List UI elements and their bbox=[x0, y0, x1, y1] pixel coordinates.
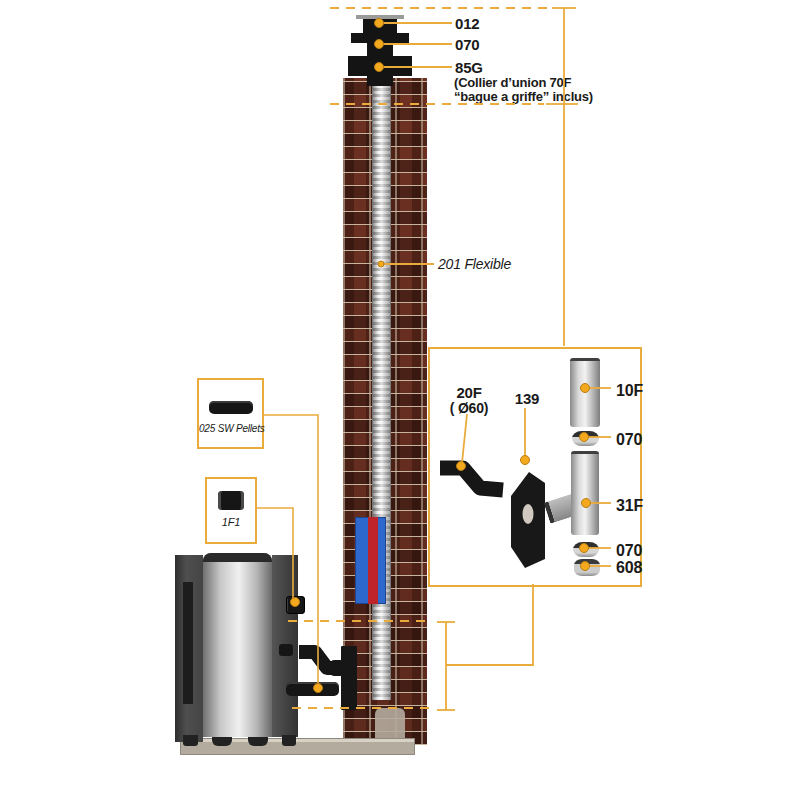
callout-label-012: 012 bbox=[455, 15, 479, 32]
label-070-bottom: 070 bbox=[616, 542, 642, 560]
stove-foot bbox=[183, 735, 198, 746]
stove-body bbox=[203, 553, 272, 737]
stove-foot bbox=[248, 737, 268, 746]
collar-070-bottom-part bbox=[573, 542, 599, 557]
label-070-top: 070 bbox=[616, 431, 642, 449]
fitting-part-label: 1F1 bbox=[207, 516, 255, 528]
detail-box: 20F ( Ø60) 139 10F 070 31F 070 608 bbox=[428, 347, 642, 587]
label-20f: 20F bbox=[447, 384, 491, 401]
fitting-part bbox=[218, 491, 244, 510]
callout-label-070-top: 070 bbox=[455, 36, 479, 53]
label-608: 608 bbox=[616, 559, 642, 577]
wall-plate-stub bbox=[331, 660, 343, 676]
pipe-10f-part bbox=[570, 358, 600, 427]
flex-liner bbox=[372, 84, 391, 700]
label-20f-dia: ( Ø60) bbox=[447, 400, 491, 416]
callout-label-85g: 85G bbox=[455, 59, 483, 76]
label-139: 139 bbox=[507, 390, 547, 407]
callout-note-line1: (Collier d’union 70F bbox=[454, 75, 571, 90]
stove-foot bbox=[282, 735, 296, 746]
stove-foot bbox=[212, 737, 232, 746]
wall-plate-installed bbox=[341, 646, 357, 710]
wall-base-recess bbox=[375, 708, 405, 740]
stove-window-slot bbox=[183, 582, 193, 704]
cap-pipe-lower bbox=[367, 76, 393, 86]
label-31f: 31F bbox=[616, 497, 643, 515]
pellets-part-box: 025 SW Pellets bbox=[197, 378, 264, 449]
cap-608-part bbox=[574, 559, 600, 576]
tee-31f-part bbox=[571, 451, 599, 535]
collar-070-top-part bbox=[572, 431, 599, 446]
cap-storm-collar bbox=[348, 56, 412, 76]
cap-pipe-upper bbox=[367, 43, 393, 56]
fitting-1f1-installed bbox=[286, 596, 305, 614]
cap-clamp bbox=[351, 33, 409, 43]
pellet-pipe-part bbox=[209, 401, 253, 414]
stove-top-band bbox=[203, 553, 272, 562]
pellet-pipe-installed bbox=[286, 682, 339, 696]
insulation-core bbox=[368, 517, 378, 604]
plate-139-hole bbox=[523, 504, 534, 524]
callout-label-201-flexible: 201 Flexible bbox=[438, 256, 511, 272]
plate-139-part bbox=[511, 472, 545, 568]
callout-note-line2: “bague a griffe” inclus) bbox=[454, 89, 593, 104]
adapter-nipple bbox=[279, 644, 293, 656]
bracket-to-box-connector bbox=[446, 584, 533, 665]
fitting-part-box: 1F1 bbox=[205, 477, 257, 544]
insulation-section bbox=[355, 517, 386, 604]
pellets-part-label: 025 SW Pellets bbox=[199, 423, 262, 434]
label-10f: 10F bbox=[616, 382, 643, 400]
cap-body bbox=[363, 19, 397, 33]
installation-diagram: 012 070 85G (Collier d’union 70F “bague … bbox=[0, 0, 800, 800]
